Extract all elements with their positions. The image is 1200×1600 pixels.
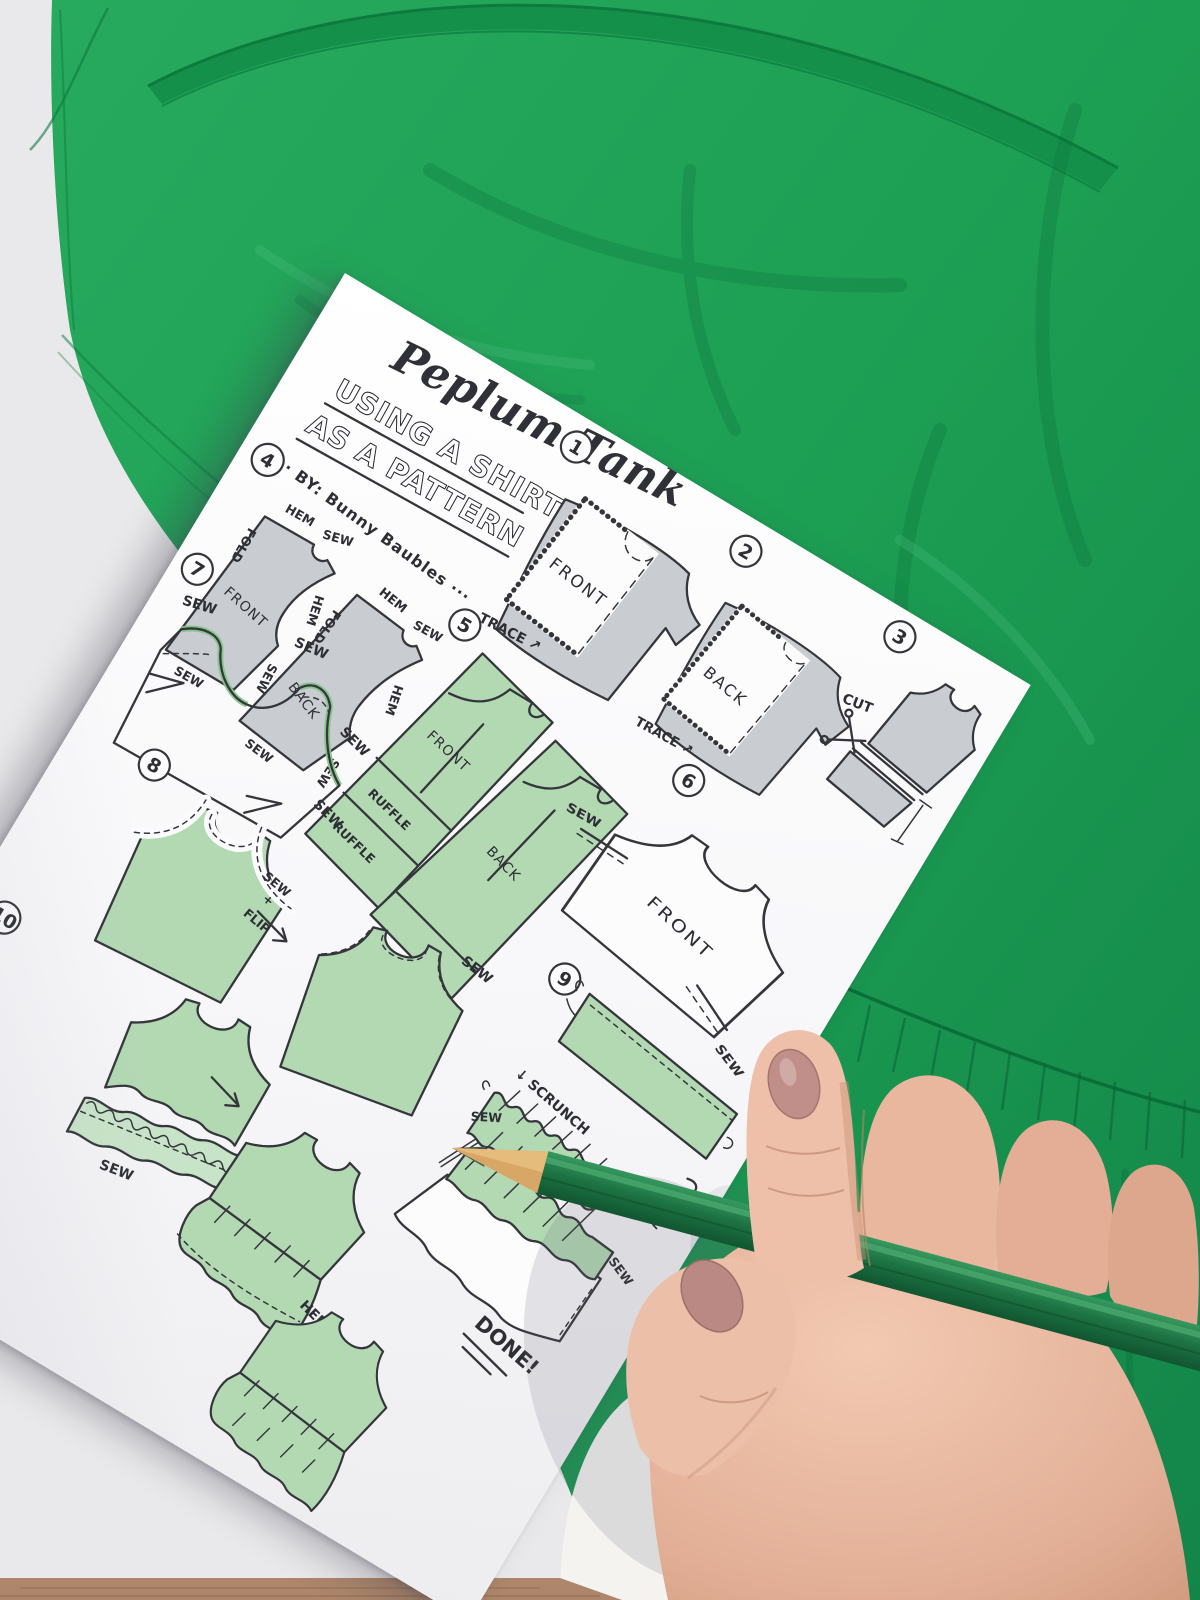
floor-strip	[0, 1578, 622, 1600]
photo-scene: Peplum Tank USING A SHIRT AS A PATTERN ·…	[0, 0, 1200, 1600]
